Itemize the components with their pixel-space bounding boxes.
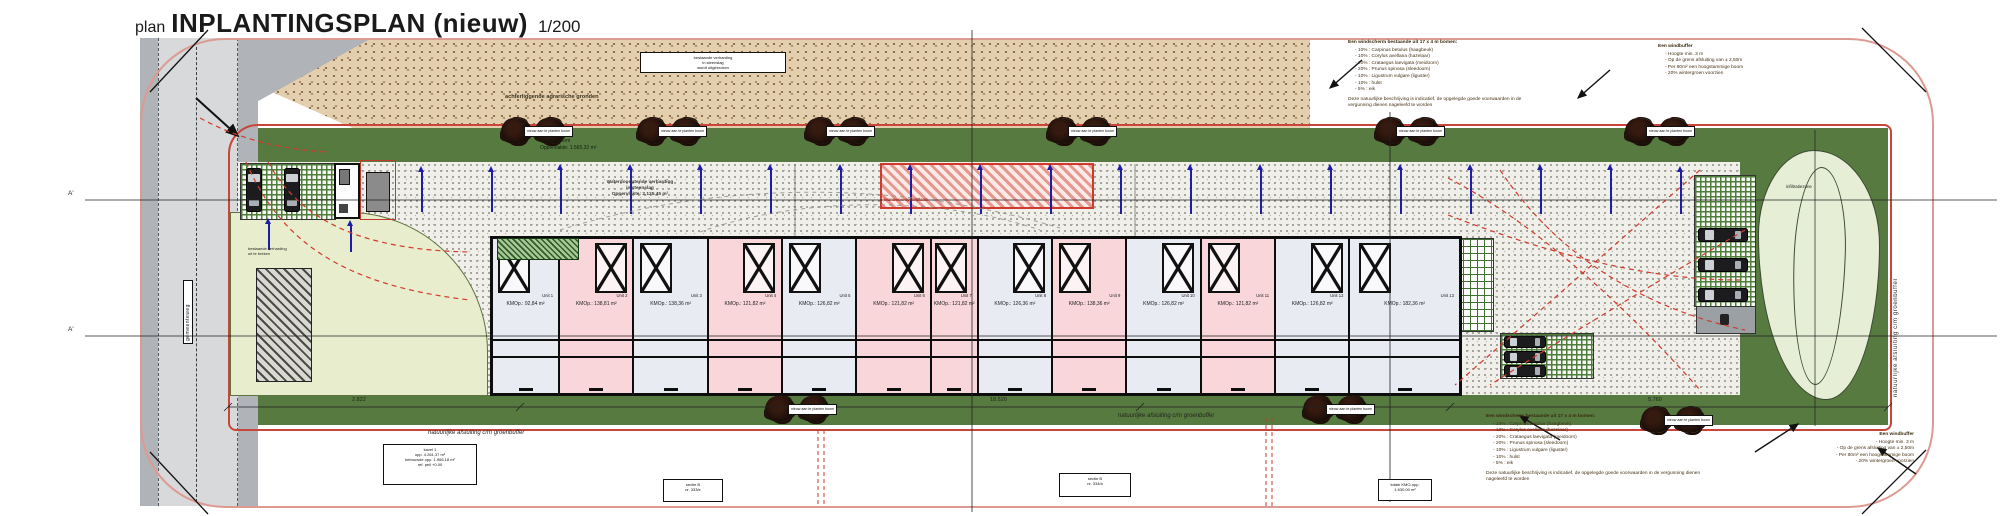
mezzanine-xbox	[595, 243, 627, 293]
natural-border-label-bottom-right: natuurlijke afsluiting c/m groenbuffer	[1118, 413, 1214, 419]
flow-arrow	[1610, 170, 1612, 214]
mezzanine-xbox	[1013, 243, 1045, 293]
site-plan-drawing: planINPLANTINGSPLAN (nieuw)1/200 gemeent…	[0, 0, 2000, 516]
mezzanine-xbox	[743, 243, 775, 293]
dimension-left: 2.822	[352, 397, 366, 403]
permeable-line: in steenslag	[626, 186, 654, 191]
annotation-heading: Een windscherm bestaande uit 17 x 4 m bo…	[1348, 40, 1528, 47]
annotation-heading: Een windscherm bestaande uit 17 x 4 m bo…	[1486, 414, 1721, 421]
info-box-line: 1.630,00 m²	[1381, 487, 1429, 492]
dimension-center: 18.520	[990, 397, 1007, 403]
unit-area: KMOp.: 121,82 m²	[709, 301, 781, 307]
annotation-item: - 10% : Ligustrum vulgare (liguster)	[1348, 74, 1528, 81]
flow-arrow	[350, 226, 352, 252]
unit-area: KMOp.: 138,81 m²	[560, 301, 632, 307]
unit-number: Unit 4	[765, 293, 776, 298]
green-screen-label: Groenscherm Oppervlakte: 1.565,32 m²	[540, 138, 596, 151]
parked-car	[1698, 288, 1748, 302]
flow-arrow	[1470, 170, 1472, 214]
green-screen-line: Oppervlakte: 1.565,32 m²	[540, 145, 596, 151]
pictogram-box	[1696, 306, 1756, 334]
unit-area: KMOp.: 126,82 m²	[1276, 301, 1348, 307]
tree-tag: nieuw aan te planten boom	[1646, 126, 1695, 137]
parked-car	[1504, 365, 1546, 377]
unit-area: KMOp.: 126,82 m²	[1127, 301, 1199, 307]
unit-number: Unit 13	[1441, 293, 1454, 298]
flow-arrow	[1190, 170, 1192, 214]
road-name-label: gemeenteweg	[183, 280, 193, 344]
unit-door	[738, 388, 752, 392]
existing-paving-note: bestaande verharding in steenslag wordt …	[640, 52, 786, 73]
dimension-right: 5.760	[1648, 397, 1662, 403]
annotation-heading: Een windbuffer	[1766, 432, 1914, 439]
green-roof-strip	[497, 238, 579, 260]
annotation-item: - Op de grens afsluiting van ± 2,50m	[1766, 446, 1914, 453]
road-centerline	[196, 42, 197, 502]
unit-number: Unit 5	[840, 293, 851, 298]
annotation-item: - 10% : hulst	[1486, 455, 1721, 462]
technical-cabin	[334, 163, 360, 219]
annotation-item: - 20% : Prunus spinosa (sleedoorn)	[1486, 441, 1721, 448]
unit-area: KMOp.: 126,36 m²	[979, 301, 1051, 307]
kmo-building: Unit 1KMOp.: 92,84 m²Unit 2KMOp.: 138,81…	[490, 236, 1462, 396]
kmo-unit: Unit 8KMOp.: 126,36 m²	[979, 239, 1053, 393]
unit-door	[947, 388, 961, 392]
demolition-line: uit te breken	[248, 251, 270, 256]
unit-area: KMOp.: 121,82 m²	[932, 301, 977, 307]
annotation-note: Deze natuurlijke beschrijving is indicat…	[1486, 471, 1721, 483]
flow-arrow	[1680, 172, 1682, 214]
flow-arrow	[770, 170, 772, 214]
annotation-buffer-top: Een windbuffer- Hoogte min. 3 m- Op de g…	[1658, 44, 1808, 78]
flow-arrow	[840, 170, 842, 214]
kmo-unit: Unit 11KMOp.: 121,82 m²	[1202, 239, 1276, 393]
unit-number: Unit 10	[1181, 293, 1194, 298]
kmo-unit: Unit 1KMOp.: 92,84 m²	[493, 239, 560, 393]
pond-waterline	[1789, 166, 1849, 386]
unit-number: Unit 12	[1330, 293, 1343, 298]
cabin-unit	[366, 172, 390, 212]
natural-border-label-right: natuurlijke afsluiting c/m groenbuffer	[1893, 222, 1899, 397]
annotation-item: - 10% : Corylus avellana (hazelaar)	[1486, 428, 1721, 435]
lot-division-lines	[818, 418, 1272, 506]
kmo-unit: Unit 9KMOp.: 138,36 m²	[1053, 239, 1127, 393]
unit-area: KMOp.: 182,36 m²	[1350, 301, 1459, 307]
parked-car	[284, 168, 300, 212]
tree-tag: nieuw aan te planten boom	[1396, 126, 1445, 137]
permeable-line: Oppervlakte: 2.125,45 m²	[612, 192, 669, 197]
unit-area: KMOp.: 138,36 m²	[634, 301, 706, 307]
demolition-area	[256, 268, 312, 382]
unit-number: Unit 9	[1109, 293, 1120, 298]
unit-door	[664, 388, 678, 392]
unit-door	[1398, 388, 1412, 392]
tree-tag: nieuw aan te planten boom	[826, 126, 875, 137]
unit-door	[519, 388, 533, 392]
kmo-unit: Unit 5KMOp.: 126,82 m²	[783, 239, 857, 393]
flow-arrow	[1540, 170, 1542, 214]
annotation-item: - 10% : hulst	[1348, 81, 1528, 88]
annotation-item: - 10% : Ligustrum vulgare (liguster)	[1486, 448, 1721, 455]
unit-door	[589, 388, 603, 392]
annotation-item: - 20% : Prunus spinosa (sleedoorn)	[1348, 67, 1528, 74]
unit-door	[1082, 388, 1096, 392]
unit-door	[812, 388, 826, 392]
flow-arrow	[421, 172, 423, 212]
unit-door	[887, 388, 901, 392]
tree-tag: nieuw aan te planten boom	[658, 126, 707, 137]
annotation-planting-bottom: Een windscherm bestaande uit 17 x 4 m bo…	[1486, 414, 1721, 483]
mezzanine-xbox	[892, 243, 924, 293]
annotation-item: - 5% : eik	[1486, 461, 1721, 468]
info-box-line: ref. peil +0.00	[386, 462, 474, 467]
parked-car	[1504, 336, 1546, 348]
annotation-item: - 5% : eik	[1348, 87, 1528, 94]
existing-paving-line: wordt uitgebroken	[697, 65, 729, 70]
parcel-info-box: sectie Bnr. 333/e	[663, 479, 723, 502]
annotation-heading: Een windbuffer	[1658, 44, 1808, 51]
kmo-unit: Unit 6KMOp.: 121,82 m²	[857, 239, 931, 393]
unit-number: Unit 2	[617, 293, 628, 298]
permeable-paving-label: Waterdoorlatende verharding in steenslag…	[575, 180, 705, 198]
mezzanine-xbox	[1208, 243, 1240, 293]
mezzanine-xbox	[935, 243, 967, 293]
unit-door	[1008, 388, 1022, 392]
kmo-unit: Unit 10KMOp.: 126,82 m²	[1127, 239, 1201, 393]
green-screen-line: Groenscherm	[540, 138, 570, 144]
unit-door	[1157, 388, 1171, 392]
plan-scale: 1/200	[538, 17, 581, 36]
tree-tag: nieuw aan te planten boom	[788, 404, 837, 415]
annotation-note: Deze natuurlijke beschrijving is indicat…	[1348, 97, 1528, 109]
annotation-item: - 10% : Corylus avellana (hazelaar)	[1348, 54, 1528, 61]
unit-door	[1231, 388, 1245, 392]
flow-arrow	[1050, 170, 1052, 214]
parcel-info-box: kavel 1opp. 4.261,37 m²bebouwde opp. 1.9…	[383, 444, 477, 485]
kmo-unit: Unit 7KMOp.: 121,82 m²	[932, 239, 979, 393]
parcel-info-box: totale KMO-opp.1.630,00 m²	[1378, 479, 1432, 501]
building-units: Unit 1KMOp.: 92,84 m²Unit 2KMOp.: 138,81…	[493, 239, 1459, 393]
kmo-unit: Unit 3KMOp.: 138,36 m²	[634, 239, 708, 393]
unit-area: KMOp.: 121,82 m²	[1202, 301, 1274, 307]
mezzanine-xbox	[1359, 243, 1391, 293]
flow-arrow	[1400, 170, 1402, 214]
parked-car	[1698, 258, 1748, 272]
mezzanine-xbox	[1311, 243, 1343, 293]
flow-arrow	[491, 172, 493, 212]
plan-title-main: INPLANTINGSPLAN (nieuw)	[171, 8, 528, 38]
annotation-item: - Op de grens afsluiting van ± 2,50m	[1658, 58, 1808, 65]
flow-arrow	[910, 170, 912, 214]
flow-arrow	[980, 170, 982, 214]
tree-tag: nieuw aan te planten boom	[1326, 404, 1375, 415]
annotation-item: - 20% wintergroen voorzien	[1766, 459, 1914, 466]
plan-title-prefix: plan	[135, 19, 165, 36]
kmo-unit: Unit 2KMOp.: 138,81 m²	[560, 239, 634, 393]
farmland-label: achterliggende agrarische gronden	[505, 94, 635, 101]
flow-arrow	[560, 170, 562, 214]
unit-number: Unit 8	[1035, 293, 1046, 298]
unit-area: KMOp.: 92,84 m²	[493, 301, 558, 307]
demolition-label: bestaande verharding uit te breken	[248, 246, 328, 256]
unit-area: KMOp.: 121,82 m²	[857, 301, 929, 307]
unit-number: Unit 11	[1256, 293, 1269, 298]
parked-car	[1504, 351, 1546, 363]
mezzanine-xbox	[1162, 243, 1194, 293]
unit-area: KMOp.: 126,82 m²	[783, 301, 855, 307]
mezzanine-xbox	[1059, 243, 1091, 293]
unit-number: Unit 6	[914, 293, 925, 298]
unit-number: Unit 3	[691, 293, 702, 298]
flow-arrow	[1330, 170, 1332, 214]
info-box-line: nr. 334/a	[1062, 481, 1128, 486]
permeable-line: Waterdoorlatende verharding	[607, 180, 674, 185]
road-lane	[158, 38, 238, 506]
parked-car	[246, 168, 262, 212]
flow-arrow	[1120, 170, 1122, 214]
plan-title: planINPLANTINGSPLAN (nieuw)1/200	[135, 8, 581, 39]
annotation-item: - 20% wintergroen voorzien	[1658, 71, 1808, 78]
unit-door	[1305, 388, 1319, 392]
parked-car	[1698, 228, 1748, 242]
kmo-unit: Unit 13KMOp.: 182,36 m²	[1350, 239, 1459, 393]
section-marker-a1: A'	[68, 190, 74, 197]
kmo-unit: Unit 12KMOp.: 126,82 m²	[1276, 239, 1350, 393]
unit-number: Unit 7	[961, 293, 972, 298]
tree-tag: nieuw aan te planten boom	[524, 126, 573, 137]
unit-area: KMOp.: 138,36 m²	[1053, 301, 1125, 307]
unit-number: Unit 1	[542, 293, 553, 298]
parcel-info-box: sectie Bnr. 334/a	[1059, 473, 1131, 497]
mezzanine-xbox	[640, 243, 672, 293]
tree-tag: nieuw aan te planten boom	[1068, 126, 1117, 137]
annotation-buffer-bottom: Een windbuffer- Hoogte min. 3 m- Op de g…	[1766, 432, 1914, 466]
pond-label: infiltratiezone	[1786, 184, 1812, 189]
fire-zone-label: brandweeropstelplaats	[884, 197, 928, 202]
mezzanine-xbox	[789, 243, 821, 293]
info-box-line: nr. 333/e	[666, 487, 720, 492]
natural-border-label-bottom-left: natuurlijke afsluiting c/m groenbuffer	[428, 430, 524, 436]
annotation-planting-top: Een windscherm bestaande uit 17 x 4 m bo…	[1348, 40, 1528, 109]
kmo-unit: Unit 4KMOp.: 121,82 m²	[709, 239, 783, 393]
section-marker-a2: A'	[68, 326, 74, 333]
flow-arrow	[1260, 170, 1262, 214]
